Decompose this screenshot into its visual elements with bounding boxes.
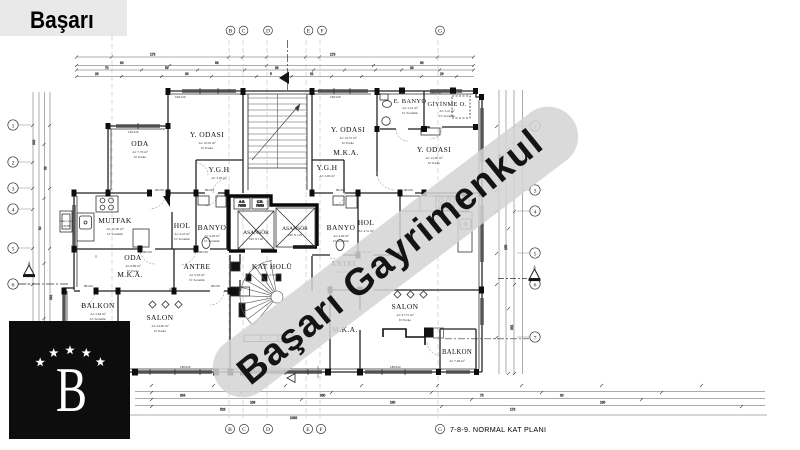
svg-text:B: B (56, 355, 87, 426)
